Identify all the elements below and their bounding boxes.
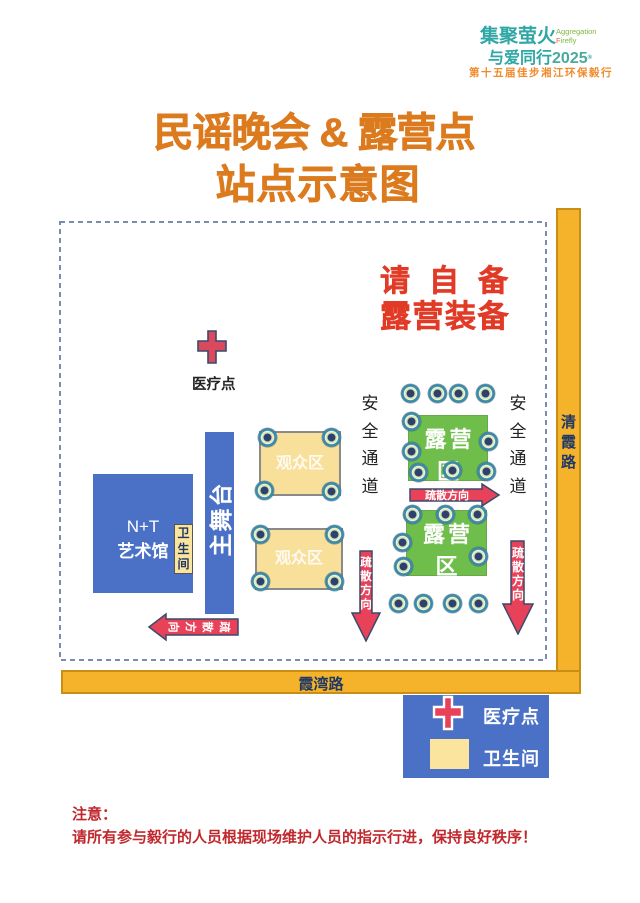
svg-text:方: 方	[512, 573, 524, 588]
svg-text:散: 散	[360, 569, 372, 583]
svg-text:疏散方向: 疏散方向	[425, 488, 469, 502]
svg-text:散: 散	[201, 622, 215, 634]
svg-text:疏: 疏	[218, 622, 232, 633]
svg-text:方: 方	[360, 583, 372, 597]
svg-text:向: 向	[360, 597, 372, 611]
svg-text:疏: 疏	[360, 555, 372, 569]
svg-text:疏: 疏	[512, 545, 524, 560]
svg-text:向: 向	[512, 587, 524, 602]
svg-text:向: 向	[167, 622, 181, 633]
svg-text:方: 方	[184, 622, 198, 633]
svg-text:散: 散	[512, 559, 525, 574]
